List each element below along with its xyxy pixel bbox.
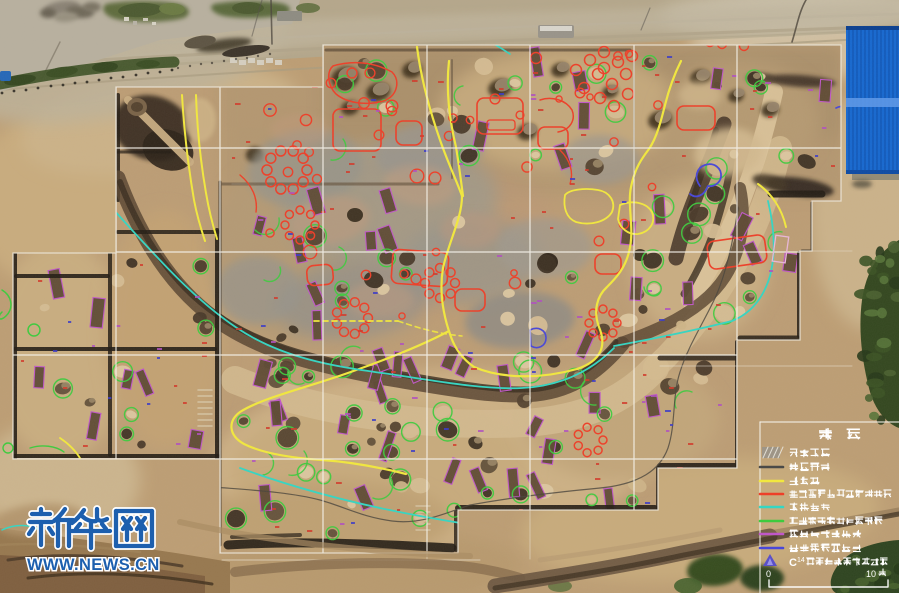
svg-text:10: 10	[866, 569, 876, 579]
svg-text:WWW.NEWS.CN: WWW.NEWS.CN	[27, 556, 160, 574]
svg-text:14: 14	[797, 557, 805, 564]
svg-text:C: C	[789, 557, 797, 569]
svg-text:0: 0	[766, 569, 771, 579]
